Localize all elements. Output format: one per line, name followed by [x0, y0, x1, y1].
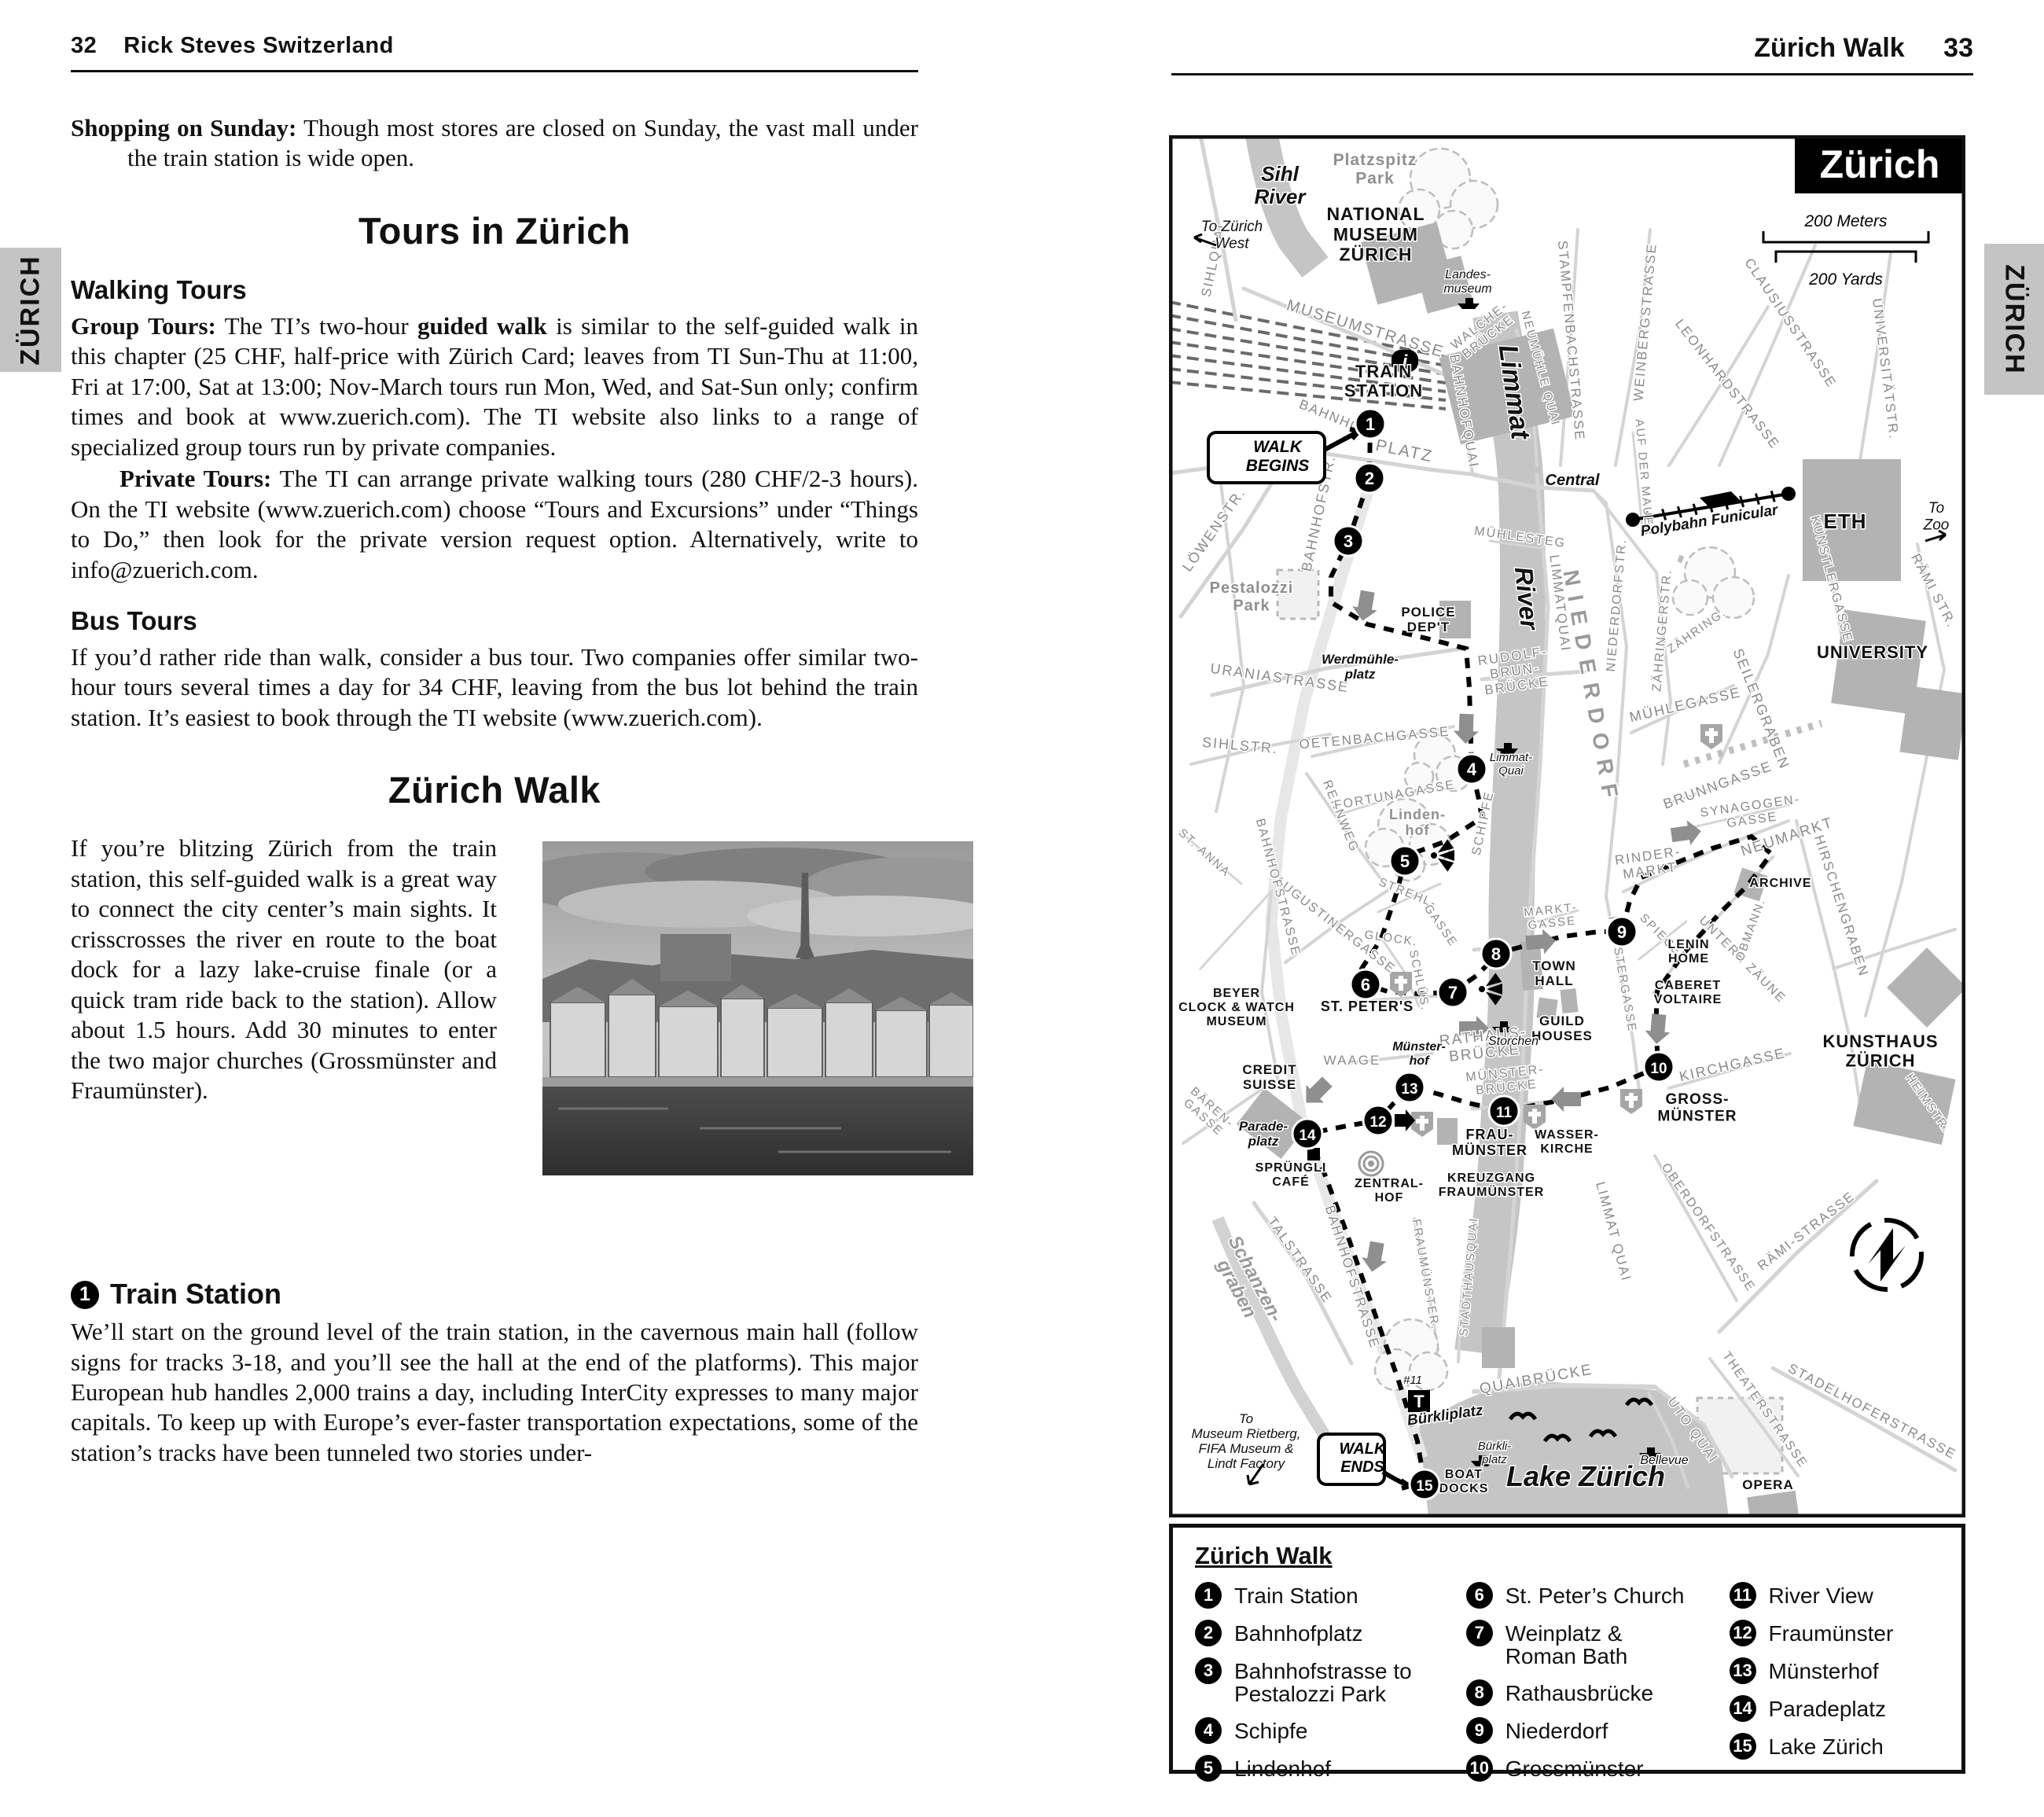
building-16: [1437, 1118, 1458, 1145]
route-arrow-1: [1453, 713, 1479, 744]
map-stop-15: 15: [1410, 1469, 1439, 1499]
building-14: [1482, 1327, 1515, 1368]
map-label-guild: GUILDHOUSES: [1531, 1013, 1593, 1043]
map-label-gross-: GROSS-MÜNSTER: [1658, 1091, 1737, 1124]
legend-label-10: Grossmünster: [1505, 1754, 1644, 1780]
legend-item-7: 7Weinplatz & Roman Bath: [1466, 1619, 1730, 1668]
map-label-storchen: Storchen: [1488, 1035, 1539, 1048]
line: [1755, 494, 1759, 505]
map-label-schanzen-: Schanzen-graben: [1205, 1232, 1287, 1335]
legend-num-3: 3: [1195, 1657, 1222, 1684]
street-58: [1200, 892, 1271, 969]
left-page-number: 32: [71, 33, 97, 58]
map-label-stadelhoferstrasse: STADELHOFERSTRASSE: [1785, 1360, 1959, 1462]
left-tab-label: ZÜRICH: [16, 255, 46, 365]
map-label-weinbergstrasse: WEINBERGSTRASSE: [1630, 242, 1660, 402]
map-stop-num-6: 6: [1361, 975, 1370, 995]
map-label-zentral-: ZENTRAL-HOF: [1355, 1177, 1424, 1205]
map-label-b-ren-: BÄREN-GASSE: [1179, 1084, 1237, 1140]
map-stop-5: 5: [1390, 846, 1420, 876]
map-stop-num-1: 1: [1366, 414, 1375, 434]
map-label-kunsthaus: KUNSTHAUSZÜRICH: [1822, 1032, 1938, 1071]
path: [1647, 1447, 1655, 1453]
map-stop-num-3: 3: [1344, 531, 1353, 551]
route-arrow-6: [1551, 1087, 1581, 1112]
left-page: 32Rick Steves Switzerland Shopping on Su…: [71, 33, 918, 1469]
map-label--11: #11: [1403, 1374, 1422, 1387]
map-stop-8: 8: [1481, 939, 1511, 969]
path: [1504, 743, 1512, 749]
map-stop-10: 10: [1644, 1052, 1674, 1082]
map-stop-1: 1: [1355, 409, 1385, 439]
compass-icon: [1852, 1220, 1921, 1289]
rect: [1307, 1148, 1320, 1160]
map-label-town: TOWNHALL: [1532, 958, 1576, 988]
map-label-leonhardstrasse: LEONHARDSTRASSE: [1672, 316, 1782, 451]
map-label-markt-: MARKT-GASSE: [1523, 900, 1579, 932]
map-label-landes-: Landes-museum: [1443, 268, 1491, 296]
legend-label-15: Lake Zürich: [1769, 1732, 1884, 1758]
map-label-m-hlegasse: MÜHLEGASSE: [1628, 684, 1743, 725]
map-label-platzspitz: PlatzspitzPark: [1333, 151, 1417, 188]
legend-columns: 1Train Station2Bahnhofplatz3Bahnhofstras…: [1195, 1581, 1961, 1782]
legend-column-1: 1Train Station2Bahnhofplatz3Bahnhofstras…: [1195, 1581, 1466, 1782]
church-icon: [1390, 972, 1412, 997]
walk-heading: Zürich Walk: [71, 767, 918, 813]
legend-item-1: 1Train Station: [1195, 1581, 1466, 1609]
map-label-st-peter-s: ST. PETER'S: [1321, 999, 1414, 1014]
legend-label-14: Paradeplatz: [1769, 1694, 1886, 1720]
right-page-side-tab: ZÜRICH: [1984, 244, 2044, 395]
legend-label-9: Niederdorf: [1505, 1716, 1608, 1742]
circle: [1781, 487, 1796, 501]
legend-label-12: Fraumünster: [1769, 1619, 1894, 1645]
legend-num-11: 11: [1730, 1582, 1756, 1609]
map-label-police: POLICEDEP'T: [1401, 605, 1455, 634]
line: [1693, 504, 1697, 515]
line: [1771, 491, 1774, 502]
legend-item-9: 9Niederdorf: [1466, 1716, 1730, 1744]
legend-num-7: 7: [1466, 1620, 1493, 1646]
legend-label-7: Weinplatz & Roman Bath: [1505, 1619, 1628, 1668]
church-icon: [1524, 1105, 1546, 1130]
legend-label-4: Schipfe: [1234, 1716, 1307, 1742]
route-arrow-4: [1670, 818, 1703, 848]
map-label-sihl: SihlRiver: [1254, 162, 1307, 208]
map-label-obmann-: OBMANN.: [1733, 896, 1768, 963]
map-stop-num-2: 2: [1365, 469, 1374, 488]
map-label-fraum-nster-: FRAUMÜNSTER.: [1410, 1218, 1443, 1331]
map-label-oberdorfstrasse: OBERDORFSTRASSE: [1659, 1161, 1758, 1295]
building-15: [1747, 1491, 1799, 1517]
map-label-limmat-quai: LIMMAT QUAI: [1593, 1180, 1634, 1283]
legend-label-5: Lindenhof: [1234, 1754, 1331, 1780]
map-label-lenin: LENINHOME: [1668, 938, 1710, 966]
book-title: Rick Steves Switzerland: [123, 33, 394, 58]
map-stop-14: 14: [1292, 1119, 1322, 1149]
guided-walk-bold: guided walk: [417, 312, 547, 340]
path: [1776, 252, 1916, 263]
path: [1465, 298, 1473, 303]
walk-begins-callout: WALKBEGINS: [1208, 432, 1325, 483]
legend-num-1: 1: [1195, 1582, 1222, 1609]
map-stop-13: 13: [1395, 1072, 1425, 1102]
walk-intro-section: If you’re blitzing Zürich from the train…: [71, 833, 918, 1250]
zurich-map-svg: iTSIHLQUAIMUSEUMSTRASSEBAHNHOF-PLATZBAHN…: [1169, 135, 1965, 1517]
legend-item-5: 5Lindenhof: [1195, 1754, 1466, 1782]
building-8: [1887, 947, 1965, 1028]
map-scale: 200 Meters200 Yards: [1763, 212, 1928, 289]
legend-label-8: Rathausbrücke: [1505, 1679, 1653, 1705]
ends-arrow: [1383, 1472, 1410, 1488]
train-station-heading: 1 Train Station: [71, 1277, 918, 1312]
map-stop-7: 7: [1438, 977, 1468, 1007]
walk-begins-callout-label: WALKBEGINS: [1246, 438, 1310, 475]
map-label-r-mi-strasse: RÄMI-STRASSE: [1755, 1189, 1858, 1274]
map-stop-6: 6: [1351, 969, 1380, 999]
map-label-university: UNIVERSITY: [1817, 642, 1928, 662]
map-label-central: Central: [1546, 472, 1600, 489]
map-label-m-nster-: Münster-hof: [1392, 1040, 1446, 1068]
legend-item-12: 12Fraumünster: [1730, 1619, 1961, 1646]
zurich-riverfront-photo: [542, 841, 973, 1175]
circle: [1626, 513, 1640, 527]
map-label-hirschengraben: HIRSCHENGRABEN: [1811, 833, 1871, 979]
map-stop-num-5: 5: [1400, 851, 1410, 871]
legend-title: Zürich Walk: [1195, 1542, 1961, 1570]
map-label-st-anna: ST. ANNA: [1176, 826, 1233, 880]
legend-label-6: St. Peter’s Church: [1505, 1581, 1685, 1607]
tram-icon: T: [1408, 1390, 1430, 1412]
walk-ends-callout: WALKENDS: [1318, 1434, 1387, 1484]
map-stop-4: 4: [1457, 754, 1487, 784]
map-label-boat: BOATDOCKS: [1439, 1468, 1489, 1495]
train-station-heading-label: Train Station: [110, 1277, 281, 1312]
legend-label-2: Bahnhofplatz: [1234, 1619, 1362, 1645]
map-stop-num-12: 12: [1369, 1114, 1386, 1131]
legend-num-6: 6: [1466, 1582, 1493, 1609]
map-label-sihlstr-: SIHLSTR.: [1201, 734, 1278, 756]
map-label-kreuzgang: KREUZGANGFRAUMÜNSTER: [1439, 1171, 1545, 1199]
walk-ends-callout-label: WALKENDS: [1340, 1440, 1387, 1476]
begins-arrow: [1325, 429, 1359, 450]
circle: [1368, 1160, 1374, 1167]
map-label-l-wenstr-: LÖWENSTR.: [1179, 485, 1248, 575]
map-stop-11: 11: [1489, 1096, 1519, 1126]
map-label-gasse: GASSE: [1421, 902, 1460, 949]
map-label-seilergraben: SEILERGRABEN: [1730, 646, 1793, 772]
bus-tours-heading: Bus Tours: [71, 605, 918, 638]
right-tab-label: ZÜRICH: [1999, 264, 2030, 374]
legend-item-10: 10Grossmünster: [1466, 1754, 1730, 1782]
legend-item-8: 8Rathausbrücke: [1466, 1679, 1730, 1706]
map-label-caberet: CABERETVOLTAIRE: [1654, 979, 1722, 1006]
legend-num-2: 2: [1195, 1620, 1222, 1646]
map-stop-num-15: 15: [1416, 1478, 1433, 1495]
route-arrow-7: [1359, 1240, 1389, 1274]
map-label-kirchgasse: KIRCHGASSE: [1678, 1045, 1787, 1085]
tours-heading: Tours in Zürich: [71, 208, 918, 254]
train-station-paragraph: We’ll start on the ground level of the t…: [71, 1317, 918, 1468]
scale-yards: 200 Yards: [1808, 270, 1883, 289]
map-label-rinder-: RINDER-MARKT: [1614, 844, 1684, 882]
text: T: [1414, 1392, 1425, 1411]
right-header-title: Zürich Walk: [1754, 33, 1904, 63]
group-tours-pre: The TI’s two-hour: [216, 312, 417, 340]
legend-label-13: Münsterhof: [1769, 1657, 1879, 1683]
walking-tours-heading: Walking Tours: [71, 274, 918, 307]
legend-item-6: 6St. Peter’s Church: [1466, 1581, 1730, 1609]
line: [1678, 506, 1681, 517]
map-label-wasser-: WASSER-KIRCHE: [1535, 1128, 1599, 1156]
map-label-to: ToZoo: [1923, 500, 1950, 533]
map-stop-num-8: 8: [1491, 944, 1501, 964]
circle: [1431, 852, 1437, 859]
legend-column-3: 11River View12Fraumünster13Münsterhof14P…: [1730, 1581, 1961, 1782]
legend-num-13: 13: [1730, 1657, 1756, 1684]
path: [1868, 1228, 1906, 1282]
map-label-spr-ngli: SPRÜNGLICAFÉ: [1255, 1160, 1327, 1189]
map-label-credit: CREDITSUISSE: [1242, 1062, 1296, 1092]
map-label-rennweg: RENNWEG: [1320, 778, 1361, 855]
legend-num-14: 14: [1730, 1695, 1756, 1722]
tree-cloud-13: [1673, 580, 1708, 615]
left-page-body: Shopping on Sunday: Though most stores a…: [71, 113, 918, 1468]
map-stop-2: 2: [1355, 463, 1384, 493]
walk-intro-paragraph: If you’re blitzing Zürich from the train…: [71, 833, 497, 1105]
legend-item-11: 11River View: [1730, 1581, 1961, 1609]
map-label-bellevue: Bellevue: [1640, 1454, 1688, 1467]
legend-num-5: 5: [1195, 1755, 1222, 1782]
map-stop-num-7: 7: [1448, 983, 1458, 1002]
map-stop-9: 9: [1607, 917, 1637, 947]
left-page-header: 32Rick Steves Switzerland: [71, 33, 918, 72]
path: [1458, 303, 1480, 309]
legend-label-11: River View: [1769, 1581, 1873, 1607]
legend-num-8: 8: [1466, 1679, 1493, 1706]
map-stop-num-4: 4: [1467, 760, 1477, 779]
right-page-number: 33: [1943, 33, 1973, 63]
building-6: [1899, 686, 1965, 760]
sq-icon: [1307, 1148, 1320, 1160]
legend-item-15: 15Lake Zürich: [1730, 1732, 1961, 1760]
group-tours-paragraph: Group Tours: The TI’s two-hour guided wa…: [71, 311, 918, 462]
private-tours-paragraph: Private Tours: The TI can arrange privat…: [71, 464, 918, 585]
map-label-national: NATIONALMUSEUMZÜRICH: [1326, 204, 1425, 265]
legend-item-13: 13Münsterhof: [1730, 1657, 1961, 1684]
map-stop-num-11: 11: [1496, 1105, 1513, 1121]
legend-label-3: Bahnhofstrasse to Pestalozzi Park: [1234, 1657, 1412, 1706]
shopping-label: Shopping on Sunday:: [71, 114, 296, 142]
legend-item-2: 2Bahnhofplatz: [1195, 1619, 1466, 1646]
legend-label-1: Train Station: [1234, 1581, 1358, 1607]
church-icon: [1700, 724, 1722, 749]
left-page-side-tab: ZÜRICH: [0, 248, 61, 372]
legend-item-14: 14Paradeplatz: [1730, 1694, 1961, 1722]
map-label-train: TRAINSTATION: [1344, 362, 1423, 401]
book-spread: ZÜRICH ZÜRICH 32Rick Steves Switzerland …: [0, 0, 2044, 1817]
legend-num-9: 9: [1466, 1717, 1493, 1744]
legend-item-4: 4Schipfe: [1195, 1716, 1466, 1744]
path: [1763, 231, 1928, 242]
legend-num-12: 12: [1730, 1620, 1756, 1646]
circle: [1479, 986, 1485, 992]
legend-num-10: 10: [1466, 1755, 1493, 1782]
map-label-opera: OPERA: [1742, 1477, 1793, 1492]
route-arrow-5: [1644, 1013, 1671, 1046]
scale-meters: 200 Meters: [1803, 212, 1888, 230]
map-title-block: Zürich: [1795, 135, 1965, 193]
legend-column-2: 6St. Peter’s Church7Weinplatz & Roman Ba…: [1466, 1581, 1730, 1782]
line: [1663, 509, 1666, 520]
map-stop-12: 12: [1363, 1105, 1393, 1135]
stop-1-badge: 1: [71, 1281, 99, 1309]
bus-tours-paragraph: If you’d rather ride than walk, consider…: [71, 642, 918, 733]
right-page-header: Zürich Walk 33: [1171, 33, 1973, 75]
group-tours-label: Group Tours:: [71, 312, 216, 340]
map-stop-num-10: 10: [1650, 1061, 1667, 1077]
map-legend: Zürich Walk 1Train Station2Bahnhofplatz3…: [1169, 1524, 1965, 1774]
map-stop-3: 3: [1333, 526, 1363, 556]
map-stop-num-9: 9: [1617, 922, 1627, 942]
map-stop-num-13: 13: [1401, 1081, 1417, 1098]
map-label-z-hringerstr-: ZÄHRINGERSTR.: [1649, 568, 1675, 693]
map-stop-num-14: 14: [1299, 1127, 1316, 1144]
bullseye-icon: [1359, 1152, 1383, 1175]
map-label-m-nster-: MÜNSTER-BRÜCKE: [1465, 1062, 1547, 1098]
church-icon: [1411, 1112, 1433, 1137]
shopping-paragraph: Shopping on Sunday: Though most stores a…: [71, 113, 918, 174]
map-label-to: ToMuseum Rietberg,FIFA Museum &Lindt Fac…: [1192, 1411, 1301, 1471]
legend-num-15: 15: [1730, 1733, 1756, 1760]
legend-item-3: 3Bahnhofstrasse to Pestalozzi Park: [1195, 1657, 1466, 1706]
private-tours-label: Private Tours:: [119, 465, 271, 492]
zurich-map: iTSIHLQUAIMUSEUMSTRASSEBAHNHOF-PLATZBAHN…: [1169, 135, 1965, 1517]
map-label-archive: ARCHIVE: [1749, 877, 1811, 890]
building-13: [1560, 988, 1578, 1013]
map-label-waage: WAAGE: [1324, 1053, 1381, 1068]
legend-num-4: 4: [1195, 1717, 1222, 1744]
map-title: Zürich: [1820, 142, 1940, 186]
map-label-eth: ETH: [1824, 509, 1867, 533]
church-icon: [1620, 1089, 1642, 1114]
